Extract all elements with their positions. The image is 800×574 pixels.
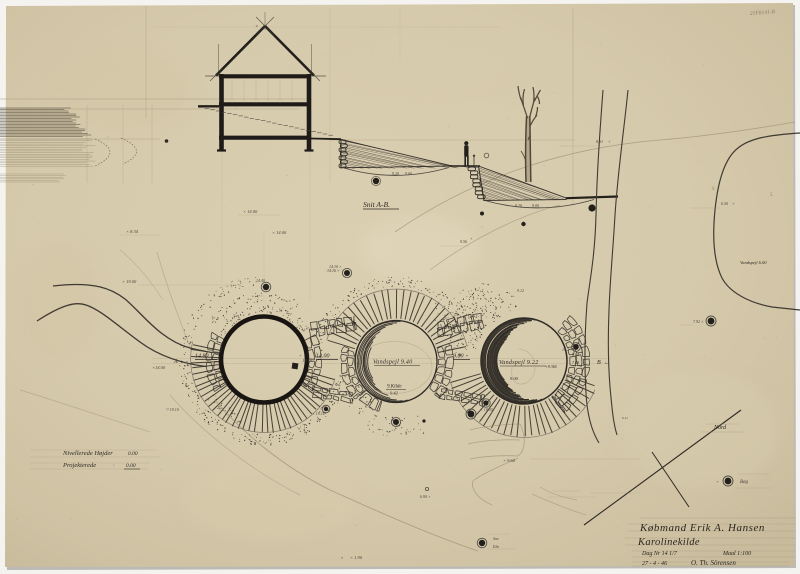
svg-text:9.00: 9.00 bbox=[532, 203, 539, 208]
svg-text:× 1.90: × 1.90 bbox=[350, 555, 363, 560]
svg-text:9.00: 9.00 bbox=[405, 171, 412, 176]
svg-text:× 19.00: × 19.00 bbox=[122, 279, 137, 284]
svg-text:Maal 1:100: Maal 1:100 bbox=[722, 551, 751, 557]
svg-text:27 - 4 - 46: 27 - 4 - 46 bbox=[642, 560, 667, 567]
svg-text:Karolinekilde: Karolinekilde bbox=[637, 537, 700, 548]
svg-text:B: B bbox=[597, 360, 601, 366]
svg-text:0.00: 0.00 bbox=[128, 451, 138, 457]
svg-text:Ebe: Ebe bbox=[492, 544, 499, 549]
svg-text:× 14.00: × 14.00 bbox=[272, 230, 287, 235]
svg-text:Købmand Erik A. Hansen: Købmand Erik A. Hansen bbox=[639, 522, 765, 534]
svg-text:× 19.05: × 19.05 bbox=[480, 407, 493, 412]
svg-text:×: × bbox=[255, 25, 258, 30]
svg-text:Bøg: Bøg bbox=[740, 480, 749, 485]
svg-text:×: × bbox=[470, 236, 473, 241]
svg-text:× 9.60: × 9.60 bbox=[503, 458, 516, 463]
svg-text:0.00: 0.00 bbox=[126, 463, 136, 469]
svg-text:°/ 19.10: °/ 19.10 bbox=[166, 407, 179, 412]
svg-text:19.2 ×: 19.2 × bbox=[562, 347, 573, 352]
svg-text:×14.00: ×14.00 bbox=[152, 365, 166, 370]
svg-text:Vandspejl 9.40: Vandspejl 9.40 bbox=[373, 359, 413, 366]
svg-text:×: × bbox=[732, 201, 735, 206]
svg-text:O. Th. Sörensen: O. Th. Sörensen bbox=[691, 559, 736, 567]
svg-text:× 8.34: × 8.34 bbox=[126, 229, 139, 234]
svg-text:14.40: 14.40 bbox=[256, 278, 265, 283]
svg-text:+9.365: +9.365 bbox=[545, 364, 557, 369]
svg-text:9.80: 9.80 bbox=[453, 354, 464, 360]
svg-text:14.10 ×: 14.10 × bbox=[329, 264, 342, 269]
svg-text:Vandspejl 6.00: Vandspejl 6.00 bbox=[740, 260, 767, 265]
svg-text:Vandspejl 9.22: Vandspejl 9.22 bbox=[499, 360, 539, 366]
svg-text:× 19.10: × 19.10 bbox=[312, 411, 325, 416]
svg-text:9.20: 9.20 bbox=[515, 203, 522, 208]
svg-text:Projekterede: Projekterede bbox=[62, 462, 96, 469]
svg-text:7.68: 7.68 bbox=[572, 360, 579, 365]
svg-text:× 14.00: × 14.00 bbox=[243, 209, 258, 214]
svg-text:8.91: 8.91 bbox=[596, 139, 603, 144]
svg-text:9.42: 9.42 bbox=[390, 391, 399, 396]
svg-text:9.56: 9.56 bbox=[460, 239, 467, 244]
svg-text:9.84: 9.84 bbox=[572, 352, 579, 357]
svg-text:9.20: 9.20 bbox=[392, 171, 399, 176]
svg-text:6.90 ×: 6.90 × bbox=[420, 494, 431, 499]
svg-text:9.Kilde: 9.Kilde bbox=[387, 385, 402, 390]
svg-text:Dag Nr 14 1/7: Dag Nr 14 1/7 bbox=[641, 550, 678, 557]
svg-text:+: + bbox=[716, 479, 719, 484]
svg-text:6.50: 6.50 bbox=[721, 201, 728, 206]
svg-text:Nivellerede Højder: Nivellerede Højder bbox=[62, 450, 113, 457]
svg-text:Sne: Sne bbox=[493, 536, 499, 541]
svg-text:14.00: 14.00 bbox=[316, 353, 330, 360]
svg-text:14.80: 14.80 bbox=[195, 353, 209, 360]
svg-text:7.92 ×: 7.92 × bbox=[693, 319, 704, 324]
svg-text:Snit A-B.: Snit A-B. bbox=[363, 200, 390, 209]
svg-text:9.12: 9.12 bbox=[517, 288, 524, 293]
svg-text:×: × bbox=[299, 353, 302, 358]
svg-text:19.10: 19.10 bbox=[302, 358, 313, 363]
svg-text:6.11: 6.11 bbox=[622, 416, 628, 420]
svg-text:Nord: Nord bbox=[713, 425, 727, 431]
